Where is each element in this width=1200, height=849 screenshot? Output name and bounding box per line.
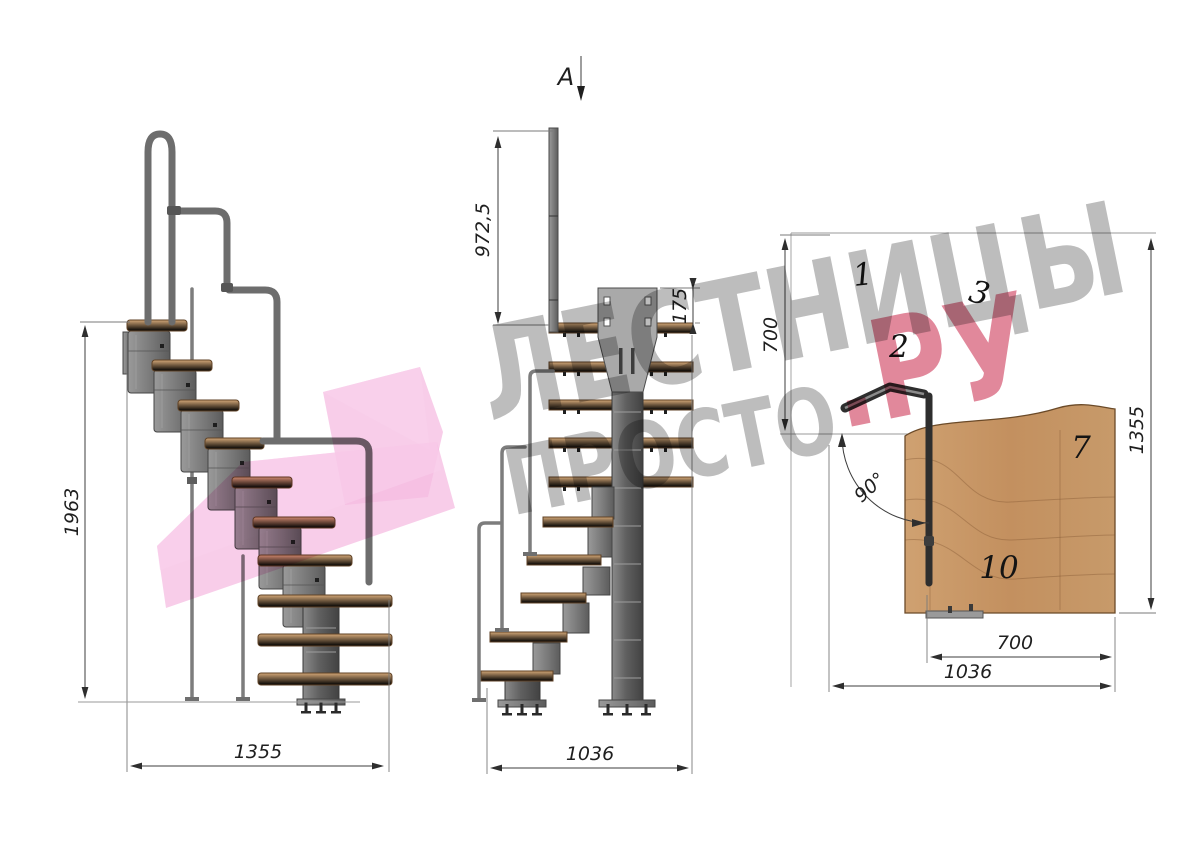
- watermark-ru-text: .РУ: [818, 275, 1044, 451]
- section-arrow: [577, 86, 585, 101]
- drawing-page: 1963 1355 A: [0, 0, 1200, 849]
- section-mark: A: [556, 56, 585, 101]
- tread-number-7: 7: [1071, 430, 1091, 466]
- dim-tread-700: 700: [997, 632, 1033, 654]
- section-label: A: [556, 63, 574, 91]
- dim-angle-90: 90°: [850, 468, 890, 507]
- dim-width-1355: 1355: [234, 741, 282, 763]
- dim-height-1963: 1963: [61, 488, 83, 536]
- base-column: [303, 605, 339, 701]
- dim-depth-1355: 1355: [1126, 406, 1148, 454]
- plan-fan-treads: [0, 0, 1200, 2]
- dim-rail-972: 972,5: [472, 203, 494, 257]
- dim-width-1036-front: 1036: [566, 743, 614, 765]
- dim-width-1036-plan: 1036: [944, 661, 992, 683]
- column-base: [599, 700, 655, 716]
- tread-number-10: 10: [979, 550, 1018, 586]
